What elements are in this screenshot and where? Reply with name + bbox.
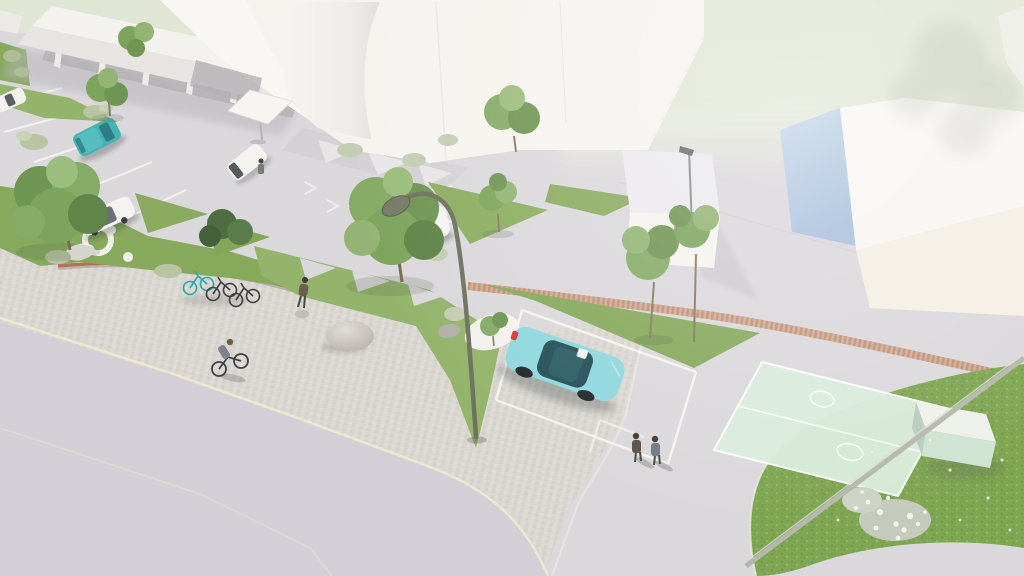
scene-svg (0, 0, 1024, 576)
person-at-van (258, 159, 264, 175)
render-canvas (0, 0, 1024, 576)
boulder (295, 310, 309, 319)
stone-dome (326, 321, 374, 351)
